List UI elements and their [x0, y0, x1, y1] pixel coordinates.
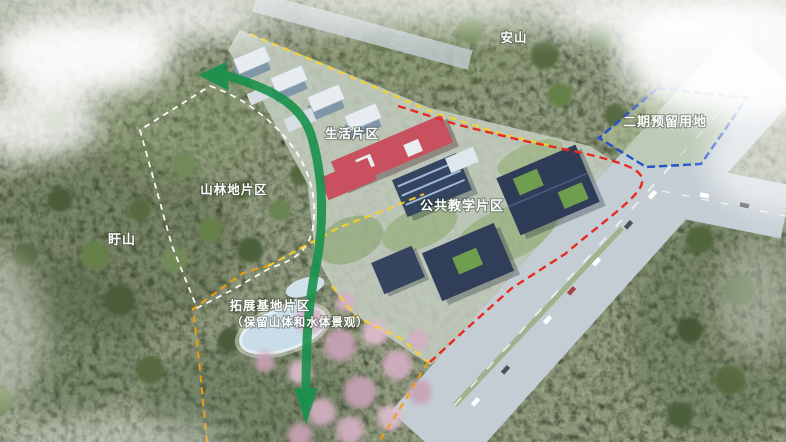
site-plan-canvas: 安山 二期预留用地 生活片区 山林地片区 公共教学片区 盱山 拓展基地片区 （保…: [0, 0, 786, 442]
label-xushan-mountain: 盱山: [108, 232, 136, 247]
label-anshan-mountain: 安山: [500, 30, 527, 45]
label-expansion-note: （保留山体和水体景观）: [231, 315, 369, 329]
label-expansion-zone: 拓展基地片区: [229, 298, 310, 313]
label-forest-zone: 山林地片区: [200, 182, 268, 197]
label-living-zone: 生活片区: [325, 126, 379, 141]
label-phase2-reserved-land: 二期预留用地: [623, 114, 707, 129]
campus-masterplan-rendering: 安山 二期预留用地 生活片区 山林地片区 公共教学片区 盱山 拓展基地片区 （保…: [0, 0, 786, 442]
label-teaching-zone: 公共教学片区: [420, 198, 504, 213]
